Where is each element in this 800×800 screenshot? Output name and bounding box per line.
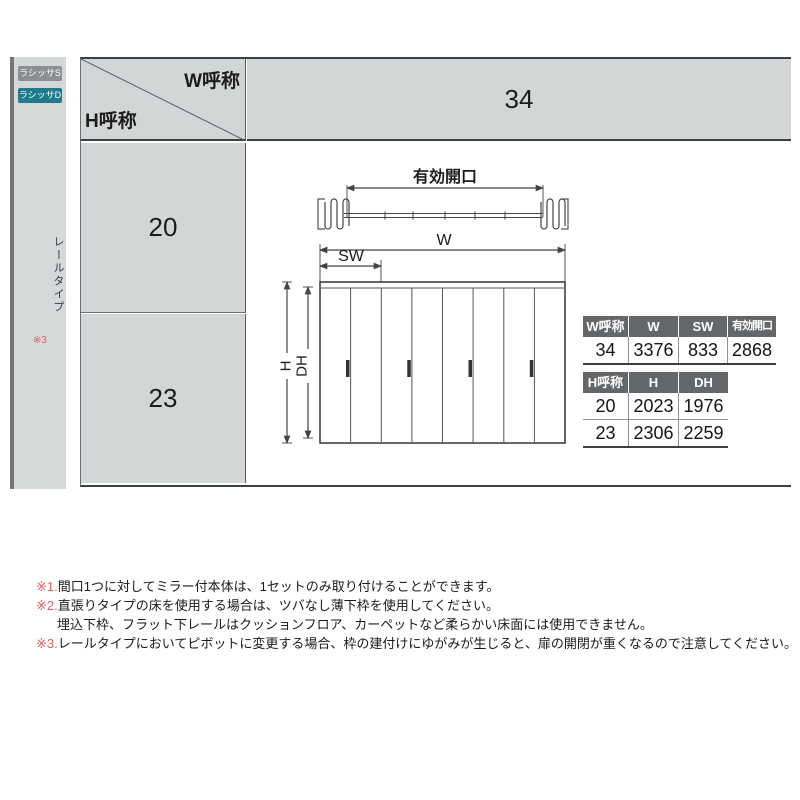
- h-spec-data-row: 20 2023 1976: [583, 393, 728, 420]
- matrix-axis-header-cell: W呼称 H呼称: [81, 59, 246, 141]
- w-spec-cell: 34: [583, 337, 629, 363]
- footnote-2: ※2.直張りタイプの床を使用する場合は、ツバなし薄下枠を使用してください。: [36, 596, 781, 615]
- footnote-marker: ※3.: [36, 636, 58, 651]
- right-folded-panels: [541, 199, 565, 229]
- matrix-h-value-cell-23: 23: [81, 314, 246, 483]
- w-spec-header-row: W呼称 W SW 有効開口: [583, 316, 776, 337]
- h-dim-label: H: [278, 361, 295, 372]
- footnote-text: 間口1つに対してミラー付本体は、1セットのみ取り付けることができます。: [58, 579, 500, 594]
- h-spec-cell: 2259: [679, 420, 728, 446]
- rail-type-label: レールタイプ: [14, 220, 66, 330]
- h-spec-data-row: 23 2306 2259: [583, 420, 728, 448]
- h-spec-header: H: [629, 372, 679, 393]
- w-spec-data-row: 34 3376 833 2868: [583, 337, 776, 365]
- w-spec-header: W: [629, 316, 679, 337]
- effective-opening-label: 有効開口: [413, 167, 477, 186]
- h-spec-header-row: H呼称 H DH: [583, 372, 728, 393]
- footnote-2-continued: 埋込下枠、フラット下レールはクッションフロア、カーペットなど柔らかい床面には使用…: [36, 615, 781, 634]
- footnote-text: レールタイプにおいてピボットに変更する場合、枠の建付けにゆがみが生じると、扉の開…: [58, 636, 797, 651]
- footnote-3: ※3.レールタイプにおいてピボットに変更する場合、枠の建付けにゆがみが生じると、…: [36, 634, 781, 653]
- w-spec-header: 有効開口: [728, 316, 776, 337]
- h-spec-cell: 2306: [629, 420, 679, 446]
- h-spec-table: H呼称 H DH 20 2023 1976 23 2306 2259: [583, 372, 728, 448]
- footnote-1: ※1.間口1つに対してミラー付本体は、1セットのみ取り付けることができます。: [36, 577, 781, 596]
- track-joint-ticks: [385, 212, 505, 220]
- w-spec-header: W呼称: [583, 316, 629, 337]
- h-axis-label: H呼称: [85, 106, 137, 133]
- series-badge-lasissa-s: ラシッサS: [18, 66, 62, 81]
- dh-dim-label: DH: [294, 355, 311, 377]
- sw-dim-label: SW: [338, 248, 365, 265]
- h-spec-header: DH: [679, 372, 728, 393]
- h-spec-cell: 20: [583, 393, 629, 419]
- h-spec-cell: 23: [583, 420, 629, 446]
- w-spec-cell: 3376: [629, 337, 679, 363]
- h-spec-header: H呼称: [583, 372, 629, 393]
- footnote-text: 埋込下枠、フラット下レールはクッションフロア、カーペットなど柔らかい床面には使用…: [57, 617, 653, 632]
- footnote-marker: ※2.: [36, 598, 58, 613]
- matrix-w-value-cell: 34: [247, 59, 791, 141]
- w-spec-cell: 2868: [728, 337, 776, 363]
- sidebar: ラシッサS ラシッサD レールタイプ ※3: [14, 57, 66, 489]
- footnote-marker: ※1.: [36, 579, 58, 594]
- w-dim-label: W: [436, 232, 452, 249]
- footnote-text: 直張りタイプの床を使用する場合は、ツバなし薄下枠を使用してください。: [58, 598, 499, 613]
- w-spec-header: SW: [679, 316, 728, 337]
- w-spec-table: W呼称 W SW 有効開口 34 3376 833 2868: [583, 316, 776, 365]
- left-jamb: [318, 199, 325, 229]
- w-spec-cell: 833: [679, 337, 728, 363]
- matrix-h-value-cell-20: 20: [81, 143, 246, 313]
- spec-sheet-page: ラシッサS ラシッサD レールタイプ ※3 W呼称 H呼称 34 20 23 有…: [0, 0, 800, 800]
- h-spec-cell: 2023: [629, 393, 679, 419]
- h-spec-cell: 1976: [679, 393, 728, 419]
- rail-type-note-ref: ※3: [14, 335, 66, 346]
- footnotes: ※1.間口1つに対してミラー付本体は、1セットのみ取り付けることができます。 ※…: [36, 577, 781, 653]
- series-badge-lasissa-d: ラシッサD: [18, 88, 62, 103]
- w-axis-label: W呼称: [184, 66, 240, 93]
